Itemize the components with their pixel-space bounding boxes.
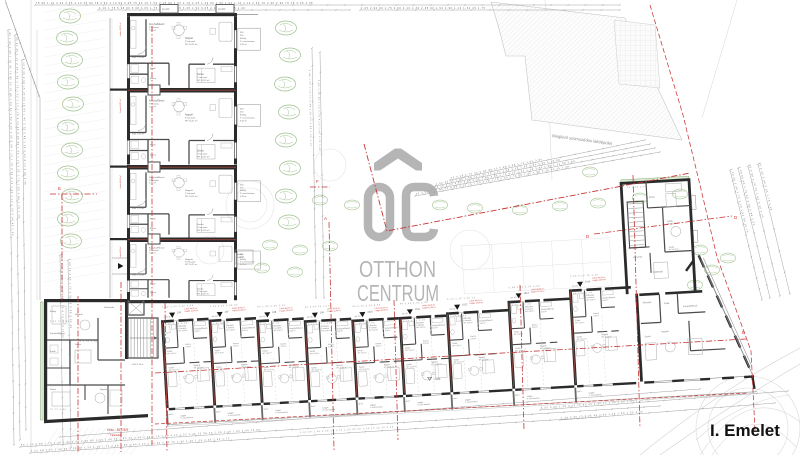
svg-text:WT: 5,30 m²: WT: 5,30 m² (321, 329, 331, 333)
svg-text:Erkély: Erkély (50, 310, 57, 313)
svg-text:Szoba: Szoba (649, 196, 656, 198)
svg-text:2,20 m²: 2,20 m² (593, 314, 599, 317)
svg-text:Konyha/Étkező: Konyha/Étkező (149, 100, 165, 103)
svg-text:15 1,75 1,10: 15 1,75 1,10 (78, 341, 98, 343)
svg-text:pm 101: pm 101 (212, 316, 218, 318)
svg-text:WT: 10,40 m²: WT: 10,40 m² (669, 248, 680, 252)
svg-text:6,60 m²: 6,60 m² (242, 329, 248, 332)
svg-text:Lakás 46,05 m²: Lakás 46,05 m² (119, 246, 122, 258)
svg-text:Lakás 46,05 m²: Lakás 46,05 m² (119, 98, 122, 112)
svg-text:Közlekedő: Közlekedő (104, 307, 115, 309)
svg-text:P. kerámia: P. kerámia (149, 250, 160, 252)
svg-text:2,20 m²: 2,20 m² (233, 344, 239, 347)
svg-text:A: A (324, 216, 327, 221)
svg-text:WT: 5,20 m²: WT: 5,20 m² (575, 321, 585, 325)
svg-text:1013: 1013 (523, 292, 529, 295)
svg-text:WT: 16,21 m²: WT: 16,21 m² (185, 263, 198, 266)
svg-text:Lakás 46,05 m²: Lakás 46,05 m² (119, 175, 122, 188)
svg-text:+3,60 2,76 m: +3,60 2,76 m (131, 364, 143, 366)
svg-text:Fürdő: Fürdő (150, 144, 156, 147)
svg-text:2,20 m²: 2,20 m² (470, 337, 476, 340)
svg-text:pm 101: pm 101 (307, 316, 313, 318)
svg-text:OTTHON: OTTHON (359, 256, 436, 282)
svg-text:WT: 16,21 m²: WT: 16,21 m² (185, 120, 198, 123)
svg-text:B: B (742, 330, 745, 335)
svg-text:Nappali: Nappali (100, 389, 108, 391)
svg-text:járd 3: járd 3 (168, 413, 173, 416)
svg-text:2,20 m²: 2,20 m² (423, 342, 429, 345)
svg-text:WT: 12,10 m²: WT: 12,10 m² (577, 337, 588, 341)
svg-text:9,45 m²: 9,45 m² (240, 43, 247, 46)
svg-text:WT: 16,21 m²: WT: 16,21 m² (185, 43, 198, 46)
svg-text:P. kerámia: P. kerámia (149, 103, 160, 106)
svg-text:gm160: gm160 (218, 8, 226, 11)
svg-text:6,60 m²: 6,60 m² (541, 310, 547, 313)
svg-text:Kamra: Kamra (150, 77, 157, 80)
svg-text:WT: 5,30 m²: WT: 5,30 m² (416, 326, 426, 330)
svg-text:WT: 12,10 m²: WT: 12,10 m² (264, 368, 275, 372)
svg-text:Hrsz.: 817/3/9: Hrsz.: 817/3/9 (107, 428, 128, 432)
svg-text:CENTRUM: CENTRUM (357, 280, 439, 306)
svg-text:WT: 5,20 m²: WT: 5,20 m² (167, 352, 177, 356)
svg-text:6,60 m²: 6,60 m² (602, 299, 608, 302)
svg-text:P. csem.kerámia: P. csem.kerámia (240, 118, 256, 120)
svg-text:F: F (316, 179, 319, 184)
svg-text:Kamra: Kamra (150, 154, 157, 157)
svg-text:P. lam.park: P. lam.park (185, 40, 196, 43)
svg-text:2,45 2,90 60 1,75 2,90 4,10 1,: 2,45 2,90 60 1,75 2,90 4,10 1,30 2,35 90… (361, 8, 486, 10)
svg-text:Szoba: Szoba (197, 224, 204, 226)
svg-text:75 75 2,90: 75 75 2,90 (50, 409, 67, 411)
svg-text:6,60 m²: 6,60 m² (337, 329, 343, 332)
svg-text:járd 3: járd 3 (263, 407, 268, 410)
svg-text:Nappali: Nappali (185, 115, 193, 117)
svg-text:Szoba: Szoba (645, 336, 652, 338)
svg-text:Közl. 2,70 m²: Közl. 2,70 m² (132, 133, 145, 136)
svg-text:2,20 m²: 2,20 m² (532, 326, 538, 329)
svg-text:E: E (58, 186, 61, 191)
svg-text:WT: 13,37 m²: WT: 13,37 m² (197, 79, 210, 82)
svg-text:Fürdő: Fürdő (150, 219, 156, 221)
svg-text:WT: 16,21 m²: WT: 16,21 m² (185, 195, 198, 198)
svg-text:7,52 m²: 7,52 m² (149, 106, 156, 109)
svg-text:9,45 m²: 9,45 m² (240, 263, 247, 266)
svg-text:6,60 m²: 6,60 m² (385, 329, 391, 332)
svg-text:WT: 12,10 m²: WT: 12,10 m² (169, 368, 180, 372)
svg-text:P. kerámia: P. kerámia (149, 180, 160, 182)
svg-text:7,52 m²: 7,52 m² (149, 182, 156, 185)
svg-text:WT: 5,20 m²: WT: 5,20 m² (452, 344, 462, 348)
svg-text:2,20 m²: 2,20 m² (376, 344, 382, 347)
svg-text:Erkély: Erkély (240, 189, 247, 192)
svg-text:WT: 13,37 m²: WT: 13,37 m² (197, 156, 210, 159)
svg-text:Erkély: Erkély (240, 37, 247, 40)
svg-text:WT: 5,30 m²: WT: 5,30 m² (179, 329, 189, 333)
svg-text:WT: 5,30 m²: WT: 5,30 m² (586, 298, 596, 302)
svg-text:4,40 m²: 4,40 m² (237, 256, 244, 259)
svg-text:P. lam.park: P. lam.park (197, 76, 208, 79)
svg-text:WT: 5,30 m²: WT: 5,30 m² (226, 328, 236, 332)
svg-text:Erkély: Erkély (237, 254, 243, 256)
svg-text:2,20 m²: 2,20 m² (328, 345, 334, 348)
svg-text:WT: 5,20 m²: WT: 5,20 m² (215, 351, 225, 355)
svg-text:járd 3: járd 3 (357, 402, 362, 405)
svg-text:Közl. 2,70 m²: Közl. 2,70 m² (132, 274, 145, 277)
svg-text:Fürdő: Fürdő (150, 67, 156, 70)
svg-text:Nappali: Nappali (185, 190, 193, 192)
svg-text:2,35 15 3,05: 2,35 15 3,05 (50, 321, 70, 323)
svg-text:pm 101: pm 101 (572, 285, 578, 287)
svg-text:P. csem.kerámia: P. csem.kerámia (240, 41, 256, 43)
svg-text:I. Emelet: I. Emelet (710, 421, 780, 440)
svg-text:pm 101: pm 101 (511, 297, 517, 299)
svg-text:járd 3: járd 3 (215, 410, 220, 413)
svg-text:Kamra: Kamra (150, 228, 157, 230)
svg-text:WT: 5,30 m²: WT: 5,30 m² (464, 321, 474, 325)
svg-text:WT: 5,30 m²: WT: 5,30 m² (369, 328, 379, 332)
svg-text:Konyha/Étkező: Konyha/Étkező (50, 332, 65, 335)
svg-text:6,60 m²: 6,60 m² (432, 326, 438, 329)
svg-text:2,20 m²: 2,20 m² (281, 345, 287, 348)
svg-text:gm140: gm140 (162, 8, 170, 11)
svg-text:Nappali: Nappali (185, 38, 193, 40)
svg-text:járd 3: járd 3 (576, 390, 581, 393)
svg-text:Konyha/Étkező: Konyha/Étkező (149, 247, 165, 250)
svg-text:P. csem.kerámia: P. csem.kerámia (240, 193, 256, 195)
svg-text:járd 3: járd 3 (452, 397, 457, 400)
svg-text:1014: 1014 (585, 280, 591, 283)
svg-text:WT: 12,10 m²: WT: 12,10 m² (311, 368, 322, 372)
svg-text:járd 3: járd 3 (405, 399, 410, 402)
svg-text:6,60 m²: 6,60 m² (290, 329, 296, 332)
svg-text:9,45 m²: 9,45 m² (240, 195, 247, 198)
svg-text:7,52 m²: 7,52 m² (149, 252, 156, 255)
svg-text:WT: 12,10 m²: WT: 12,10 m² (359, 368, 370, 372)
svg-text:+3,60: +3,60 (434, 377, 441, 381)
svg-text:WT: 5,20 m²: WT: 5,20 m² (405, 348, 415, 352)
svg-text:Szoba: Szoba (197, 151, 204, 153)
svg-text:Kamra: Kamra (150, 292, 157, 294)
svg-text:pm 101: pm 101 (449, 308, 455, 310)
svg-text:P. lam.park: P. lam.park (185, 193, 196, 195)
svg-text:Szoba: Szoba (197, 74, 204, 76)
svg-text:Szoba: Szoba (50, 389, 57, 391)
svg-text:P. lam.park: P. lam.park (185, 117, 196, 120)
svg-text:P. kerámia: P. kerámia (149, 26, 160, 29)
svg-text:WT: 13,37 m²: WT: 13,37 m² (197, 293, 210, 296)
svg-text:WT: 5,20 m²: WT: 5,20 m² (262, 351, 272, 355)
svg-text:WT: 5,20 m²: WT: 5,20 m² (310, 352, 320, 356)
svg-text:WT: 12,10 m²: WT: 12,10 m² (406, 365, 417, 369)
svg-text:Nappali: Nappali (185, 259, 193, 261)
svg-text:6,60 m²: 6,60 m² (480, 321, 486, 324)
svg-text:Konyha/Étkező: Konyha/Étkező (149, 176, 165, 179)
svg-text:Közl. 2,70 m²: Közl. 2,70 m² (132, 207, 145, 210)
svg-text:pm 101: pm 101 (402, 313, 408, 315)
svg-text:WT: 5,30 m²: WT: 5,30 m² (525, 310, 535, 314)
svg-text:Nappali: Nappali (661, 331, 669, 333)
svg-text:Fürdő: Fürdő (50, 350, 56, 353)
svg-text:járd 3: járd 3 (310, 405, 315, 408)
svg-text:1010: 1010 (367, 310, 373, 313)
svg-text:P. lam.park: P. lam.park (185, 262, 195, 264)
svg-text:9,45 m²: 9,45 m² (240, 120, 247, 123)
svg-text:2,20 m²: 2,20 m² (185, 345, 191, 348)
svg-text:járd 3: járd 3 (514, 393, 519, 396)
svg-text:WT: 5,20 m²: WT: 5,20 m² (514, 332, 524, 336)
svg-text:pm 101: pm 101 (259, 316, 265, 318)
svg-text:WT: 5,20 m²: WT: 5,20 m² (358, 351, 368, 355)
svg-text:6,60 m²: 6,60 m² (195, 329, 201, 332)
svg-text:Lakás 46,05 m²: Lakás 46,05 m² (119, 22, 122, 36)
svg-text:Szoba: Szoba (197, 289, 204, 291)
svg-text:WT: 12,10 m²: WT: 12,10 m² (454, 360, 465, 364)
svg-text:Fürdő: Fürdő (150, 284, 155, 286)
svg-text:WT: 13,37 m²: WT: 13,37 m² (197, 229, 210, 232)
svg-text:P. lam.park: P. lam.park (197, 227, 208, 229)
svg-text:Erkély: Erkély (240, 114, 247, 117)
svg-text:P. lam.park: P. lam.park (197, 153, 208, 156)
svg-text:Közl. 2,70 m²: Közl. 2,70 m² (132, 56, 145, 59)
svg-text:Konyha/Étkező: Konyha/Étkező (149, 23, 165, 26)
svg-text:1012: 1012 (462, 303, 468, 306)
svg-text:Erkély: Erkély (240, 259, 246, 261)
svg-text:7,52 m²: 7,52 m² (149, 29, 156, 32)
svg-text:pm 101: pm 101 (355, 316, 361, 318)
svg-text:1011: 1011 (415, 308, 421, 311)
svg-text:P. lam.park: P. lam.park (197, 291, 207, 293)
svg-text:Nappali: Nappali (75, 314, 83, 316)
svg-text:WT: 5,30 m²: WT: 5,30 m² (274, 329, 284, 333)
